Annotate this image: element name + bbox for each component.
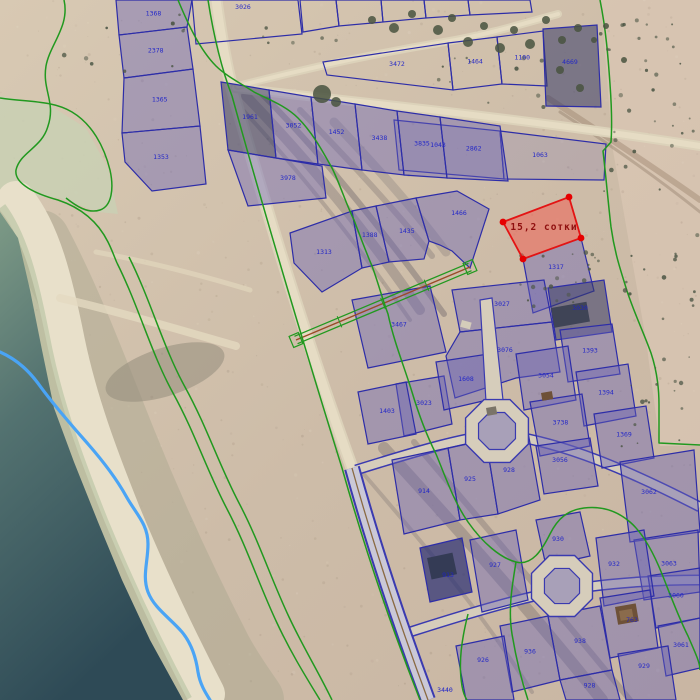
shrub-dot xyxy=(666,37,669,40)
shrub-dot xyxy=(630,385,632,387)
tree-marker xyxy=(331,97,341,107)
tree-marker xyxy=(591,37,597,43)
shrub-dot xyxy=(603,190,605,192)
shrub-dot xyxy=(599,32,603,36)
parcel-number-label: 763 xyxy=(626,616,638,624)
parcel-number-label: 1368 xyxy=(146,10,162,18)
parcel-number-label: 2378 xyxy=(148,46,164,54)
shrub-dot xyxy=(572,301,574,303)
shrub-dot xyxy=(662,358,666,362)
tree-marker xyxy=(510,26,518,34)
parcel-number-label: 3063 xyxy=(661,560,677,568)
parcel-number-label: 3030 xyxy=(572,304,588,312)
shrub-dot xyxy=(673,258,677,262)
parcel-number-label: 927 xyxy=(489,561,501,569)
tree-marker xyxy=(542,16,550,24)
shrub-dot xyxy=(679,381,683,385)
shrub-dot xyxy=(588,268,591,271)
map-canvas[interactable]: 1368237813651353302634721464110046691043… xyxy=(0,0,700,700)
parcel-number-label: 1100 xyxy=(514,54,530,62)
shrub-dot xyxy=(662,275,667,280)
parcel-number-label: 3472 xyxy=(389,60,405,68)
shrub-dot xyxy=(449,81,451,83)
parcel-number-label: 3076 xyxy=(497,346,513,354)
tree-marker xyxy=(389,23,399,33)
shrub-dot xyxy=(442,66,444,68)
parcel-number-label: 3054 xyxy=(538,372,554,380)
tree-marker xyxy=(480,22,488,30)
shrub-dot xyxy=(609,168,614,173)
shrub-dot xyxy=(572,253,574,255)
parcel-polygon[interactable] xyxy=(456,636,514,700)
tree-marker xyxy=(576,84,584,92)
shrub-dot xyxy=(541,105,545,109)
shrub-dot xyxy=(695,233,699,237)
shrub-dot xyxy=(674,255,677,258)
shrub-dot xyxy=(674,390,676,392)
shrub-dot xyxy=(673,102,677,106)
shrub-dot xyxy=(587,264,589,266)
cul-de-sac-island[interactable] xyxy=(544,568,579,603)
shrub-dot xyxy=(123,70,126,73)
shrub-dot xyxy=(648,401,650,403)
parcel-number-label: 1393 xyxy=(582,347,598,355)
shrub-dot xyxy=(681,132,684,135)
parcel-vertex-handle[interactable] xyxy=(500,219,507,226)
shrub-dot xyxy=(591,253,595,257)
shrub-dot xyxy=(320,36,324,40)
shrub-dot xyxy=(688,356,690,358)
parcel-number-label: 1452 xyxy=(329,128,345,136)
tree-marker xyxy=(313,85,331,103)
shrub-dot xyxy=(540,59,544,63)
shrub-dot xyxy=(575,281,577,283)
tree-marker xyxy=(558,36,566,44)
shrub-dot xyxy=(627,109,631,113)
tree-marker xyxy=(495,43,505,53)
parcel-number-label: 1394 xyxy=(598,389,614,397)
shrub-dot xyxy=(662,318,665,321)
parcel-number-label: 1353 xyxy=(153,153,169,161)
shrub-dot xyxy=(614,138,618,142)
shrub-dot xyxy=(635,18,639,22)
shrub-dot xyxy=(643,268,645,270)
parcel-number-label: 3738 xyxy=(553,419,569,427)
shrub-dot xyxy=(536,94,540,98)
shrub-dot xyxy=(542,255,545,258)
parcel-number-label: 1961 xyxy=(242,113,258,121)
shrub-dot xyxy=(621,445,623,447)
shrub-dot xyxy=(630,255,632,257)
parcel-number-label: 1403 xyxy=(379,407,395,415)
road-parcel-number-label: 3440 xyxy=(437,686,453,694)
shrub-dot xyxy=(487,102,489,104)
selected-parcel-area-label: 15,2 сотки xyxy=(510,222,577,233)
tree-marker xyxy=(603,23,609,29)
parcel-number-label: 2862 xyxy=(466,145,482,153)
shrub-dot xyxy=(632,150,636,154)
shrub-dot xyxy=(582,278,587,283)
shrub-dot xyxy=(531,285,535,289)
shrub-dot xyxy=(90,62,94,66)
parcel-number-label: 3060 xyxy=(668,592,684,600)
shrub-dot xyxy=(637,37,640,40)
shrub-dot xyxy=(532,304,536,308)
shrub-dot xyxy=(178,14,181,17)
shrub-dot xyxy=(334,39,337,42)
shrub-dot xyxy=(644,59,647,62)
tree-marker xyxy=(525,39,535,49)
shrub-dot xyxy=(690,298,694,302)
shrub-dot xyxy=(640,400,645,405)
shrub-dot xyxy=(265,26,268,29)
shrub-dot xyxy=(619,93,623,97)
parcel-number-label: 1317 xyxy=(548,263,564,271)
parcel-number-label: 913 xyxy=(442,571,454,579)
parcel-number-label: 3978 xyxy=(280,174,296,182)
parcel-number-label: 928 xyxy=(584,682,596,690)
parcel-number-label: 3056 xyxy=(552,456,568,464)
shrub-dot xyxy=(655,383,658,386)
shrub-dot xyxy=(567,293,571,297)
shrub-dot xyxy=(628,292,631,295)
shrub-dot xyxy=(637,442,639,444)
tree-marker xyxy=(621,57,627,63)
parcel-number-label: 938 xyxy=(574,637,586,645)
shrub-dot xyxy=(671,23,673,25)
parcel-number-label: 3438 xyxy=(372,134,388,142)
shrub-dot xyxy=(654,120,656,122)
shrub-dot xyxy=(655,36,658,39)
parcel-number-label: 3023 xyxy=(416,399,432,407)
tree-marker xyxy=(448,14,456,22)
parcel-number-label: 936 xyxy=(524,648,536,656)
parcel-polygon[interactable] xyxy=(536,438,598,494)
tree-marker xyxy=(433,25,443,35)
shrub-dot xyxy=(613,131,615,133)
shrub-dot xyxy=(594,257,596,259)
shrub-dot xyxy=(262,36,264,38)
shrub-dot xyxy=(597,260,600,263)
parcel-number-label: 3052 xyxy=(286,121,302,129)
parcel-number-label: 1466 xyxy=(451,209,467,217)
shrub-dot xyxy=(674,380,677,383)
parcel-vertex-handle[interactable] xyxy=(578,235,585,242)
parcel-number-label: 1388 xyxy=(362,231,378,239)
shrub-dot xyxy=(645,69,648,72)
shrub-dot xyxy=(584,250,589,255)
shrub-dot xyxy=(62,53,67,58)
shrub-dot xyxy=(678,439,680,441)
shrub-dot xyxy=(555,276,559,280)
shrub-dot xyxy=(645,399,648,402)
tree-marker xyxy=(556,66,564,74)
parcel-number-label: 1464 xyxy=(467,58,483,66)
shrub-dot xyxy=(689,118,691,120)
parcel-number-label: 1365 xyxy=(152,96,168,104)
parcel-number-label: 3062 xyxy=(641,488,657,496)
parcel-number-label: 925 xyxy=(464,475,476,483)
shrub-dot xyxy=(670,144,674,148)
parcel-vertex-handle[interactable] xyxy=(566,194,573,201)
shrub-dot xyxy=(633,423,636,426)
shrub-dot xyxy=(105,27,108,30)
shrub-dot xyxy=(659,188,661,190)
parcel-number-label: 932 xyxy=(608,560,620,568)
tree-marker xyxy=(574,24,582,32)
parcel-number-label: 3061 xyxy=(673,641,689,649)
building-footprint xyxy=(486,406,497,416)
parcel-number-label: 1063 xyxy=(532,151,548,159)
parcel-number-label: 926 xyxy=(477,656,489,664)
shrub-dot xyxy=(654,73,658,77)
parcel-polygon[interactable] xyxy=(543,25,601,107)
parcel-number-label: 3027 xyxy=(494,300,510,308)
shrub-dot xyxy=(555,299,558,302)
parcel-number-label: 914 xyxy=(418,487,430,495)
parcel-number-label: 3026 xyxy=(235,3,251,11)
shrub-dot xyxy=(519,283,521,285)
shrub-dot xyxy=(514,67,518,71)
tree-marker xyxy=(463,37,473,47)
shrub-dot xyxy=(267,42,270,45)
shrub-dot xyxy=(606,48,609,51)
shrub-dot xyxy=(543,287,547,291)
shrub-dot xyxy=(171,65,173,67)
shrub-dot xyxy=(693,290,696,293)
shrub-dot xyxy=(183,28,185,30)
parcel-number-label: 929 xyxy=(638,662,650,670)
tree-marker xyxy=(368,16,376,24)
parcel-number-label: 930 xyxy=(552,535,564,543)
parcel-number-label: 1608 xyxy=(458,375,474,383)
parcel-polygon[interactable] xyxy=(620,450,700,542)
shrub-dot xyxy=(674,253,676,255)
shrub-dot xyxy=(549,284,553,288)
shrub-dot xyxy=(681,407,684,410)
shrub-dot xyxy=(646,23,648,25)
map-viewport[interactable]: 1368237813651353302634721464110046691043… xyxy=(0,0,700,700)
shrub-dot xyxy=(692,130,695,133)
tree-marker xyxy=(408,10,416,18)
parcel-number-label: 1369 xyxy=(616,431,632,439)
parcel-vertex-handle[interactable] xyxy=(520,256,527,263)
shrub-dot xyxy=(171,22,175,26)
parcel-number-label: 1435 xyxy=(399,227,415,235)
cul-de-sac-island[interactable] xyxy=(479,413,516,450)
shrub-dot xyxy=(655,367,657,369)
parcel-number-label: 928 xyxy=(503,466,515,474)
parcel-polygon[interactable] xyxy=(600,590,658,658)
parcel-number-label: 4669 xyxy=(562,58,578,66)
shrub-dot xyxy=(527,299,529,301)
shrub-dot xyxy=(624,165,628,169)
shrub-dot xyxy=(672,125,674,127)
shrub-dot xyxy=(620,23,624,27)
shrub-dot xyxy=(84,56,88,60)
parcel-number-label: 3835 xyxy=(414,139,430,147)
shrub-dot xyxy=(623,288,628,293)
shrub-dot xyxy=(651,88,654,91)
parcel-number-label: 1043 xyxy=(430,141,446,149)
shrub-dot xyxy=(454,57,456,59)
shrub-dot xyxy=(437,78,441,82)
shrub-dot xyxy=(672,46,675,49)
parcel-number-label: 1313 xyxy=(316,248,332,256)
shrub-dot xyxy=(679,63,681,65)
shrub-dot xyxy=(692,304,695,307)
shrub-dot xyxy=(625,281,628,284)
parcel-polygon[interactable] xyxy=(618,646,676,700)
shrub-dot xyxy=(291,41,295,45)
parcel-number-label: 3467 xyxy=(391,321,407,329)
